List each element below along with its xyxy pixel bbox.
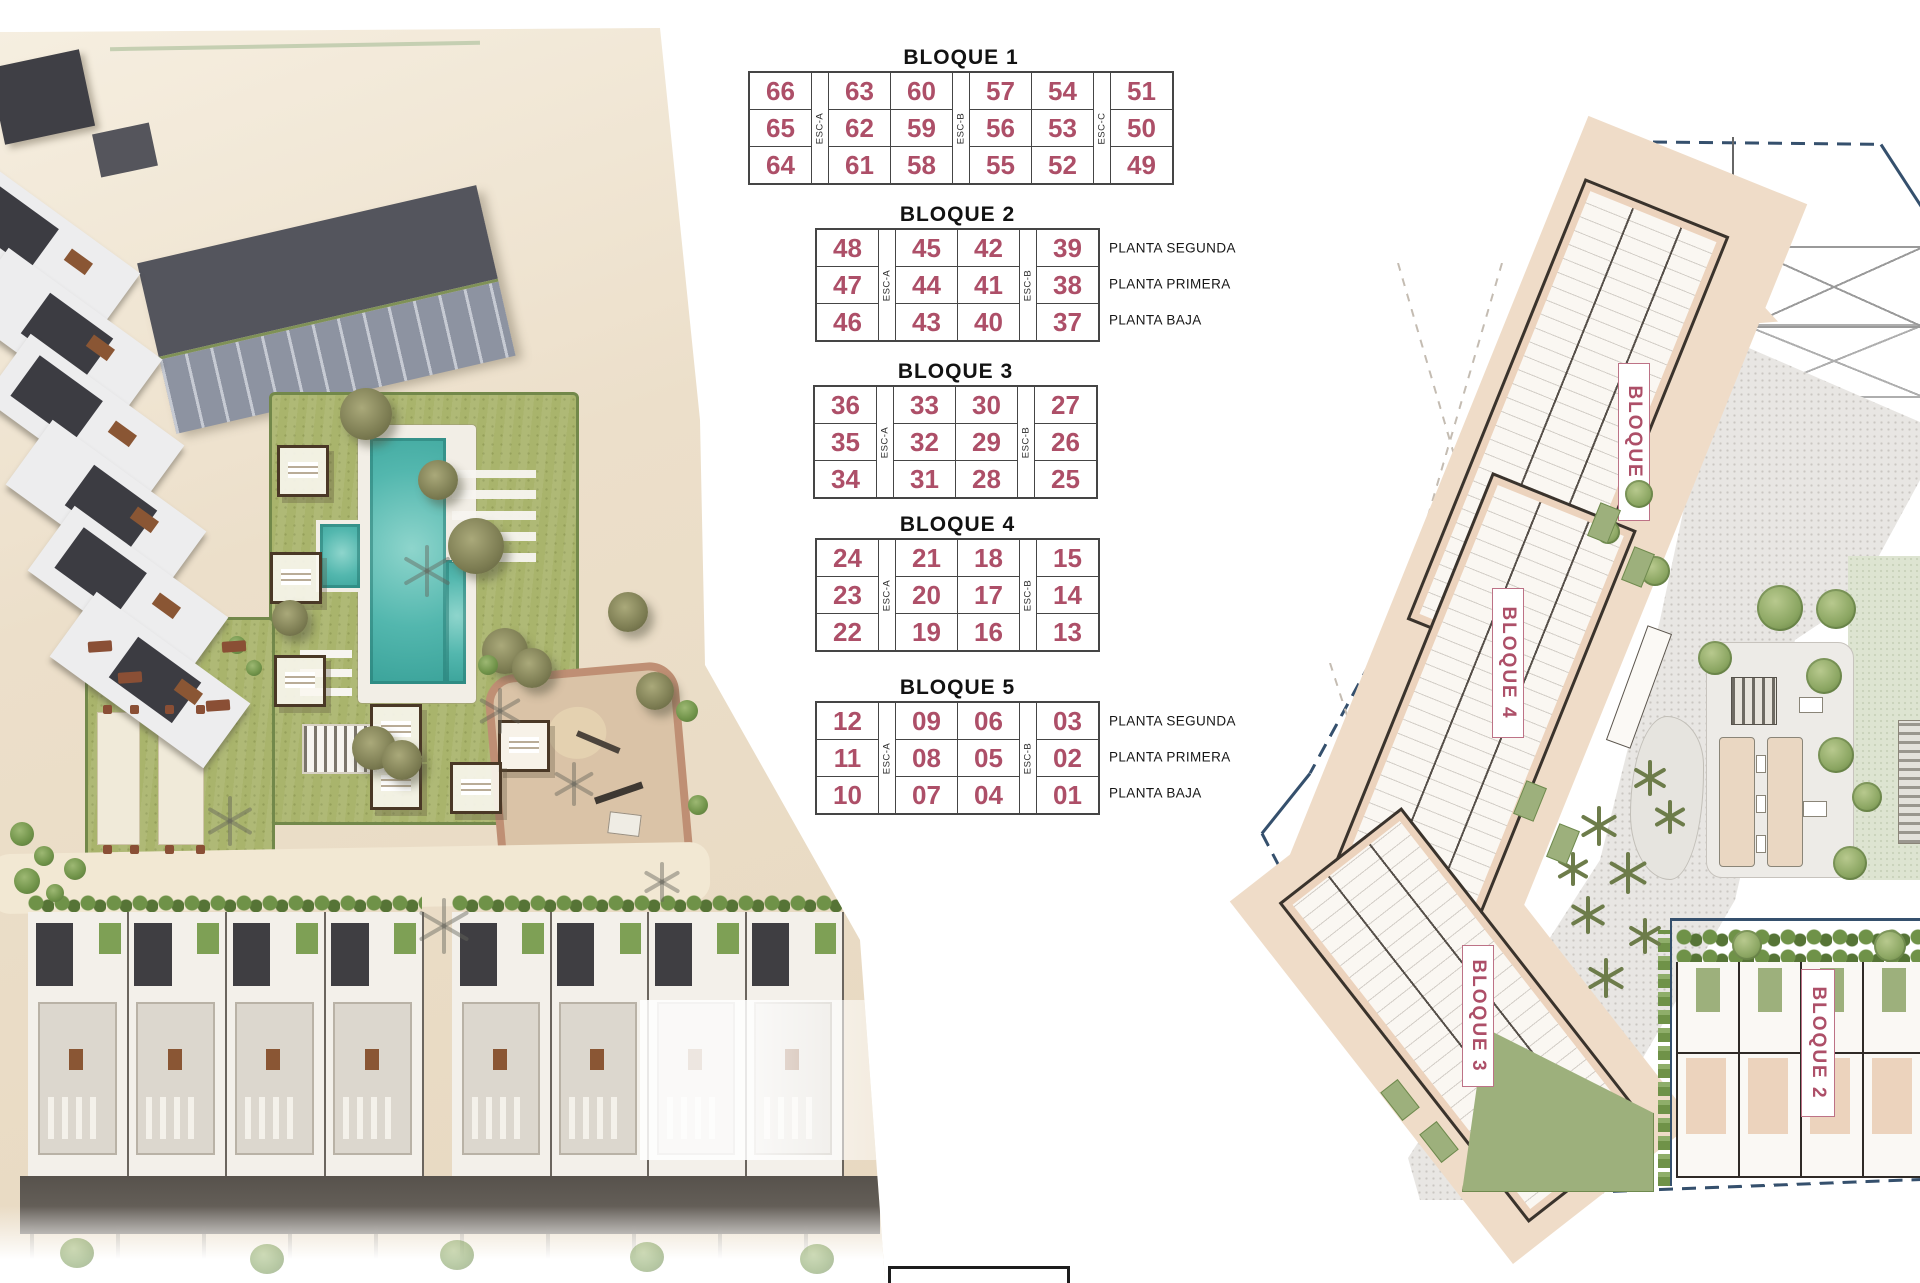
court-table — [130, 845, 139, 854]
unit-number-cell: 57 — [970, 73, 1031, 109]
townhouse-unit — [225, 912, 326, 1176]
bloque2-terraces — [1676, 968, 1920, 1012]
unit-number-cell: 65 — [750, 109, 811, 146]
palm-tree — [1668, 800, 1672, 834]
unit-number-cell: 15 — [1037, 540, 1098, 576]
palm-shadow — [572, 762, 576, 806]
olive-tree — [340, 388, 392, 440]
shrub — [10, 822, 34, 846]
unit-number-cell: 28 — [956, 460, 1017, 497]
garden-pergola — [498, 720, 550, 772]
terrace — [136, 1002, 215, 1155]
bloque5-4-podium — [1259, 116, 1807, 1020]
townhouse-block — [28, 912, 422, 1176]
palm-tree — [1604, 958, 1608, 998]
unit-column: 333231 — [893, 387, 955, 497]
stairwell-column: ESC-B — [1019, 703, 1036, 813]
olive-tree — [512, 648, 552, 688]
shrub — [14, 868, 40, 894]
existing-structure — [1745, 246, 1920, 328]
unit-number-cell: 03 — [1037, 703, 1098, 739]
unit-column: 060504 — [957, 703, 1019, 813]
terrace — [38, 1002, 117, 1155]
roof-green — [522, 923, 543, 955]
tree-bush — [1852, 782, 1882, 812]
setback-line — [1397, 263, 1503, 620]
palm-shadow — [660, 862, 664, 902]
shrub — [228, 636, 246, 654]
bloque-table: BLOQUE 2484746ESC-A454443424140ESC-B3938… — [815, 203, 1100, 342]
plan-label-bloque3: BLOQUE 3 — [1462, 945, 1494, 1087]
unit-column: 363534 — [815, 387, 876, 497]
terrace-loungers — [146, 1097, 201, 1139]
table-title: BLOQUE 1 — [748, 46, 1174, 69]
tree-bush — [1698, 641, 1732, 675]
unit-number-cell: 42 — [958, 230, 1019, 266]
unit-number-cell: 24 — [817, 540, 878, 576]
unit-number-cell: 66 — [750, 73, 811, 109]
unit-number-cell: 45 — [896, 230, 957, 266]
stairwell-label: ESC-A — [882, 269, 893, 301]
unit-column: 545352 — [1031, 73, 1093, 183]
street-palm — [630, 1242, 664, 1272]
plan-label-text: BLOQUE 2 — [1807, 986, 1829, 1099]
unit-number-cell: 61 — [829, 146, 890, 183]
garden-bench — [88, 640, 113, 653]
bloque3-podium — [1230, 760, 1694, 1264]
terrace-table — [266, 1049, 280, 1070]
unit-number-cell: 44 — [896, 266, 957, 303]
unit-column: 575655 — [969, 73, 1031, 183]
unit-number-cell: 34 — [815, 460, 876, 497]
unit-column: 181716 — [957, 540, 1019, 650]
stairwell-column: ESC-A — [811, 73, 828, 183]
stairwell-column: ESC-A — [876, 387, 893, 497]
facade-columns — [30, 1226, 870, 1270]
roof-patio — [134, 923, 171, 986]
unit-column: 302928 — [955, 387, 1017, 497]
terrace — [754, 1002, 832, 1155]
plan-label-text: BLOQUE 4 — [1497, 606, 1519, 719]
court-table — [196, 845, 205, 854]
landscape-patch — [1546, 823, 1580, 865]
unit-number-cell: 58 — [891, 146, 952, 183]
townhouse-unit — [745, 912, 845, 1176]
rooftop-structure — [92, 122, 158, 177]
stairwell-label: ESC-B — [1023, 579, 1034, 611]
street-facade-band — [20, 1176, 880, 1234]
palm-shadow — [228, 796, 232, 846]
walkway — [0, 842, 710, 915]
unit-number-cell: 37 — [1037, 303, 1098, 340]
unit-number-cell: 27 — [1035, 387, 1096, 423]
olive-tree — [382, 740, 422, 780]
unit-number-cell: 62 — [829, 109, 890, 146]
planta-label: PLANTA SEGUNDA — [1109, 714, 1236, 729]
apartment-terrace-block — [0, 334, 184, 510]
shrub — [688, 795, 708, 815]
bloque-table: BLOQUE 1666564ESC-A636261605958ESC-B5756… — [748, 46, 1174, 185]
tree-bush — [1640, 556, 1670, 586]
stairwell-column: ESC-B — [1019, 540, 1036, 650]
bloque2-wall-line — [1676, 1052, 1920, 1054]
stairwell-label: ESC-B — [956, 112, 967, 144]
terrace — [333, 1002, 412, 1155]
roof-green — [717, 923, 738, 955]
roof-patio — [36, 923, 73, 986]
bloque3-building — [1279, 807, 1652, 1223]
petanque-court — [158, 712, 204, 845]
unit-number-cell: 56 — [970, 109, 1031, 146]
olive-tree — [636, 672, 674, 710]
tree-bush — [1816, 589, 1856, 629]
terrace-table — [785, 1049, 799, 1070]
unit-number-cell: 40 — [958, 303, 1019, 340]
street-palm — [440, 1240, 474, 1270]
pergola-structure — [1731, 677, 1777, 725]
roof-green — [197, 923, 219, 955]
tree-bush — [1833, 846, 1867, 880]
lane-ladder — [1756, 835, 1766, 853]
court-table — [103, 705, 112, 714]
hedge-column — [1658, 930, 1670, 1186]
stairwell-column: ESC-A — [878, 540, 895, 650]
pool-pavilion — [302, 724, 388, 774]
shrub — [64, 858, 86, 880]
stairwell-column: ESC-A — [878, 703, 895, 813]
planta-label: PLANTA SEGUNDA — [1109, 241, 1236, 256]
court-table — [165, 845, 174, 854]
brochure-page: { "colors": { "accent": "#ad4f68", "navy… — [0, 0, 1920, 1280]
townhouse-unit — [550, 912, 650, 1176]
unit-number-cell: 35 — [815, 423, 876, 460]
palm-tree — [1571, 852, 1575, 886]
stairwell-label: ESC-C — [1097, 112, 1108, 144]
unit-column: 484746 — [817, 230, 878, 340]
boundary-dashed-left — [1478, 142, 1608, 462]
lap-lane — [1767, 737, 1803, 867]
unit-number-cell: 05 — [958, 739, 1019, 776]
terrace-loungers — [472, 1097, 527, 1139]
terrace — [462, 1002, 540, 1155]
unit-number-cell: 19 — [896, 613, 957, 650]
court-table — [165, 705, 174, 714]
tree-bush — [1732, 930, 1762, 960]
amenity-plaza — [1706, 642, 1854, 878]
unit-number-cell: 12 — [817, 703, 878, 739]
stairwell-label: ESC-B — [1021, 426, 1032, 458]
terrace-table — [493, 1049, 507, 1070]
unit-number-cell: 16 — [958, 613, 1019, 650]
street-palm — [250, 1244, 284, 1274]
olive-tree — [418, 460, 458, 500]
unit-number-cell: 53 — [1032, 109, 1093, 146]
boundary-dashed-southwest — [1261, 833, 1454, 1199]
unit-number-cell: 29 — [956, 423, 1017, 460]
hedge-line — [110, 41, 480, 51]
terrace — [235, 1002, 314, 1155]
roof-patio — [557, 923, 594, 986]
roof-green — [620, 923, 641, 955]
unit-number-cell: 43 — [896, 303, 957, 340]
bloque-table: BLOQUE 5121110ESC-A090807060504ESC-B0302… — [815, 676, 1100, 815]
unit-number-cell: 38 — [1037, 266, 1098, 303]
planta-label: PLANTA PRIMERA — [1109, 750, 1231, 765]
roof-patio — [331, 923, 368, 986]
setback-line — [1397, 263, 1503, 620]
bloque2-boundary-top — [1670, 918, 1920, 921]
unit-number-cell: 50 — [1111, 109, 1172, 146]
lap-lane — [1719, 737, 1755, 867]
plan-label-text: BLOQUE 5 — [1623, 385, 1645, 498]
apartment-terrace-block — [50, 592, 251, 768]
table-grid: 484746ESC-A454443424140ESC-B393837 — [815, 228, 1100, 342]
sun-loungers — [300, 640, 352, 696]
garden-pergola — [270, 552, 322, 604]
unit-number-cell: 39 — [1037, 230, 1098, 266]
sun-loungers — [452, 470, 536, 562]
townhouse-unit — [452, 912, 552, 1176]
garden-pergola — [274, 655, 326, 707]
olive-tree — [448, 518, 504, 574]
stairwell-column: ESC-B — [1017, 387, 1034, 497]
terrace-loungers — [764, 1097, 819, 1139]
townhouse-unit — [28, 912, 129, 1176]
street-palm — [800, 1244, 834, 1274]
palm-shadow — [442, 898, 446, 954]
unit-column: 242322 — [817, 540, 878, 650]
olive-tree — [608, 592, 648, 632]
unit-column: 272625 — [1034, 387, 1096, 497]
unit-number-cell: 51 — [1111, 73, 1172, 109]
fade-out — [0, 1206, 925, 1280]
terrace-loungers — [667, 1097, 722, 1139]
shrub — [246, 660, 262, 676]
boundary-dashed-bottom — [1452, 1178, 1920, 1199]
parking-slots — [159, 279, 516, 434]
unit-column: 636261 — [828, 73, 890, 183]
unit-number-cell: 59 — [891, 109, 952, 146]
boundary-dashed-top — [1607, 140, 1883, 146]
tree-bush — [1806, 658, 1842, 694]
table-title: BLOQUE 4 — [815, 513, 1100, 536]
garden-pergola — [370, 758, 422, 810]
roof-green — [815, 923, 836, 955]
plan-label-bloque5: BLOQUE 5 — [1618, 363, 1650, 521]
lane-ladder — [1756, 795, 1766, 813]
unit-column: 151413 — [1036, 540, 1098, 650]
roof-patio — [752, 923, 789, 986]
unit-number-cell: 26 — [1035, 423, 1096, 460]
unit-number-cell: 60 — [891, 73, 952, 109]
landscape-patch — [1380, 1079, 1420, 1121]
garden-pergola — [277, 445, 329, 497]
court-table — [196, 705, 205, 714]
unit-column: 121110 — [817, 703, 878, 813]
unit-column: 424140 — [957, 230, 1019, 340]
stairs — [1898, 720, 1920, 844]
shrub — [478, 655, 498, 675]
garden-pergola — [450, 762, 502, 814]
unit-number-cell: 01 — [1037, 776, 1098, 813]
unit-column: 393837 — [1036, 230, 1098, 340]
unit-number-cell: 41 — [958, 266, 1019, 303]
unit-number-cell: 17 — [958, 576, 1019, 613]
unit-number-cell: 55 — [970, 146, 1031, 183]
garden-pergola — [370, 704, 422, 756]
stairwell-label: ESC-B — [1023, 269, 1034, 301]
unit-number-cell: 14 — [1037, 576, 1098, 613]
stairwell-column: ESC-B — [952, 73, 969, 183]
pool-deck — [358, 425, 476, 703]
unit-number-cell: 52 — [1032, 146, 1093, 183]
palm-shadow — [498, 688, 502, 734]
shrub — [46, 884, 64, 902]
unit-number-cell: 06 — [958, 703, 1019, 739]
unit-number-cell: 47 — [817, 266, 878, 303]
playground — [483, 660, 695, 888]
tree-bush — [1757, 585, 1803, 631]
bloque2-boundary-left — [1670, 918, 1672, 1186]
kids-pool — [316, 520, 364, 592]
bloque5-building — [1407, 178, 1730, 678]
tree-bush — [1874, 930, 1906, 962]
play-equipment — [594, 782, 644, 805]
terrace-loungers — [343, 1097, 398, 1139]
setback-line — [1329, 663, 1441, 1003]
bloque4-building — [1325, 472, 1637, 944]
parking-canopy — [137, 185, 515, 431]
terrace-loungers — [245, 1097, 300, 1139]
roof-green — [394, 923, 416, 955]
plan-label-bloque4: BLOQUE 4 — [1492, 588, 1524, 738]
unit-number-cell: 11 — [817, 739, 878, 776]
unit-number-cell: 07 — [896, 776, 957, 813]
boundary-dashed-left — [1309, 461, 1482, 774]
unit-column: 090807 — [895, 703, 957, 813]
garden-bench — [206, 699, 231, 712]
apartment-terrace-block — [0, 248, 162, 424]
unit-number-cell: 08 — [896, 739, 957, 776]
bloque2-hedge — [1676, 928, 1920, 962]
stairwell-label: ESC-A — [882, 579, 893, 611]
west-lawn — [85, 617, 275, 860]
swimming-pool-wing — [446, 560, 466, 684]
terrace-loungers — [48, 1097, 103, 1139]
roof-patio — [655, 923, 692, 986]
garden-bench — [118, 671, 143, 684]
table-grid: 121110ESC-A090807060504ESC-B030201 — [815, 701, 1100, 815]
terrace-table — [168, 1049, 182, 1070]
shrub — [34, 846, 54, 866]
tree-bush — [1818, 737, 1854, 773]
unit-number-cell: 25 — [1035, 460, 1096, 497]
unit-number-cell: 22 — [817, 613, 878, 650]
unit-number-cell: 32 — [894, 423, 955, 460]
unit-number-cell: 09 — [896, 703, 957, 739]
townhouse-unit — [127, 912, 228, 1176]
hedge-strip — [28, 894, 422, 914]
garden-lawn — [269, 392, 579, 825]
planta-label: PLANTA BAJA — [1109, 786, 1202, 801]
townhouse-block — [452, 912, 842, 1176]
palm-shadow — [425, 545, 429, 597]
internal-road — [1395, 300, 1920, 1200]
petanque-court — [97, 712, 140, 845]
hedge-strip — [452, 894, 842, 914]
landscape-patch — [1419, 1121, 1459, 1163]
plan-label-bloque2: BLOQUE 2 — [1801, 969, 1835, 1117]
stairwell-column: ESC-C — [1093, 73, 1110, 183]
shrub — [676, 700, 698, 722]
olive-tree — [272, 600, 308, 636]
terrace-table — [365, 1049, 379, 1070]
planter — [1606, 625, 1672, 749]
bench — [1799, 697, 1823, 713]
survey-line — [1732, 137, 1734, 247]
planta-label: PLANTA BAJA — [1109, 313, 1202, 328]
canopy-roof — [137, 185, 498, 357]
unit-number-cell: 20 — [896, 576, 957, 613]
unit-number-cell: 02 — [1037, 739, 1098, 776]
legend-box-partial — [888, 1266, 1070, 1283]
unit-number-cell: 13 — [1037, 613, 1098, 650]
bloque2-rooms — [1676, 1058, 1920, 1134]
planta-label: PLANTA PRIMERA — [1109, 277, 1231, 292]
townhouse-unit — [647, 912, 747, 1176]
slide — [607, 811, 641, 837]
table-grid: 363534ESC-A333231302928ESC-B272625 — [813, 385, 1098, 499]
apartment-terrace-block — [28, 506, 229, 682]
sand-circle — [546, 704, 608, 761]
boundary-corner — [1261, 773, 1311, 835]
table-title: BLOQUE 2 — [815, 203, 1100, 226]
palm-tree — [1586, 896, 1590, 934]
roof-patio — [233, 923, 270, 986]
lawn-wedge — [1462, 1028, 1654, 1192]
street-palm — [60, 1238, 94, 1268]
olive-tree — [352, 726, 396, 770]
landscape-patch — [1587, 502, 1621, 544]
unit-number-cell: 46 — [817, 303, 878, 340]
boundary-corner — [1880, 144, 1920, 208]
aerial-render — [0, 0, 920, 1280]
setback-line — [1329, 663, 1441, 1003]
table-grid: 242322ESC-A212019181716ESC-B151413 — [815, 538, 1100, 652]
bench — [1803, 801, 1827, 817]
table-grid: 666564ESC-A636261605958ESC-B575655545352… — [748, 71, 1174, 185]
bloque2-building — [1676, 962, 1920, 1178]
existing-structure — [1745, 324, 1920, 398]
apartment-terrace-block — [6, 420, 207, 596]
unit-column: 454443 — [895, 230, 957, 340]
terrace — [559, 1002, 637, 1155]
table-title: BLOQUE 5 — [815, 676, 1100, 699]
unit-number-cell: 48 — [817, 230, 878, 266]
rooftop-structure — [0, 49, 95, 144]
roof-green — [99, 923, 121, 955]
unit-number-cell: 49 — [1111, 146, 1172, 183]
unit-column: 605958 — [890, 73, 952, 183]
bloque-table: BLOQUE 4242322ESC-A212019181716ESC-B1514… — [815, 513, 1100, 652]
palm-tree — [1648, 760, 1652, 796]
sage-lawn — [1848, 556, 1920, 880]
palm-tree — [1643, 918, 1647, 954]
unit-number-cell: 33 — [894, 387, 955, 423]
terrace-loungers — [569, 1097, 624, 1139]
unit-number-cell: 04 — [958, 776, 1019, 813]
landscape-patch — [1621, 546, 1655, 588]
